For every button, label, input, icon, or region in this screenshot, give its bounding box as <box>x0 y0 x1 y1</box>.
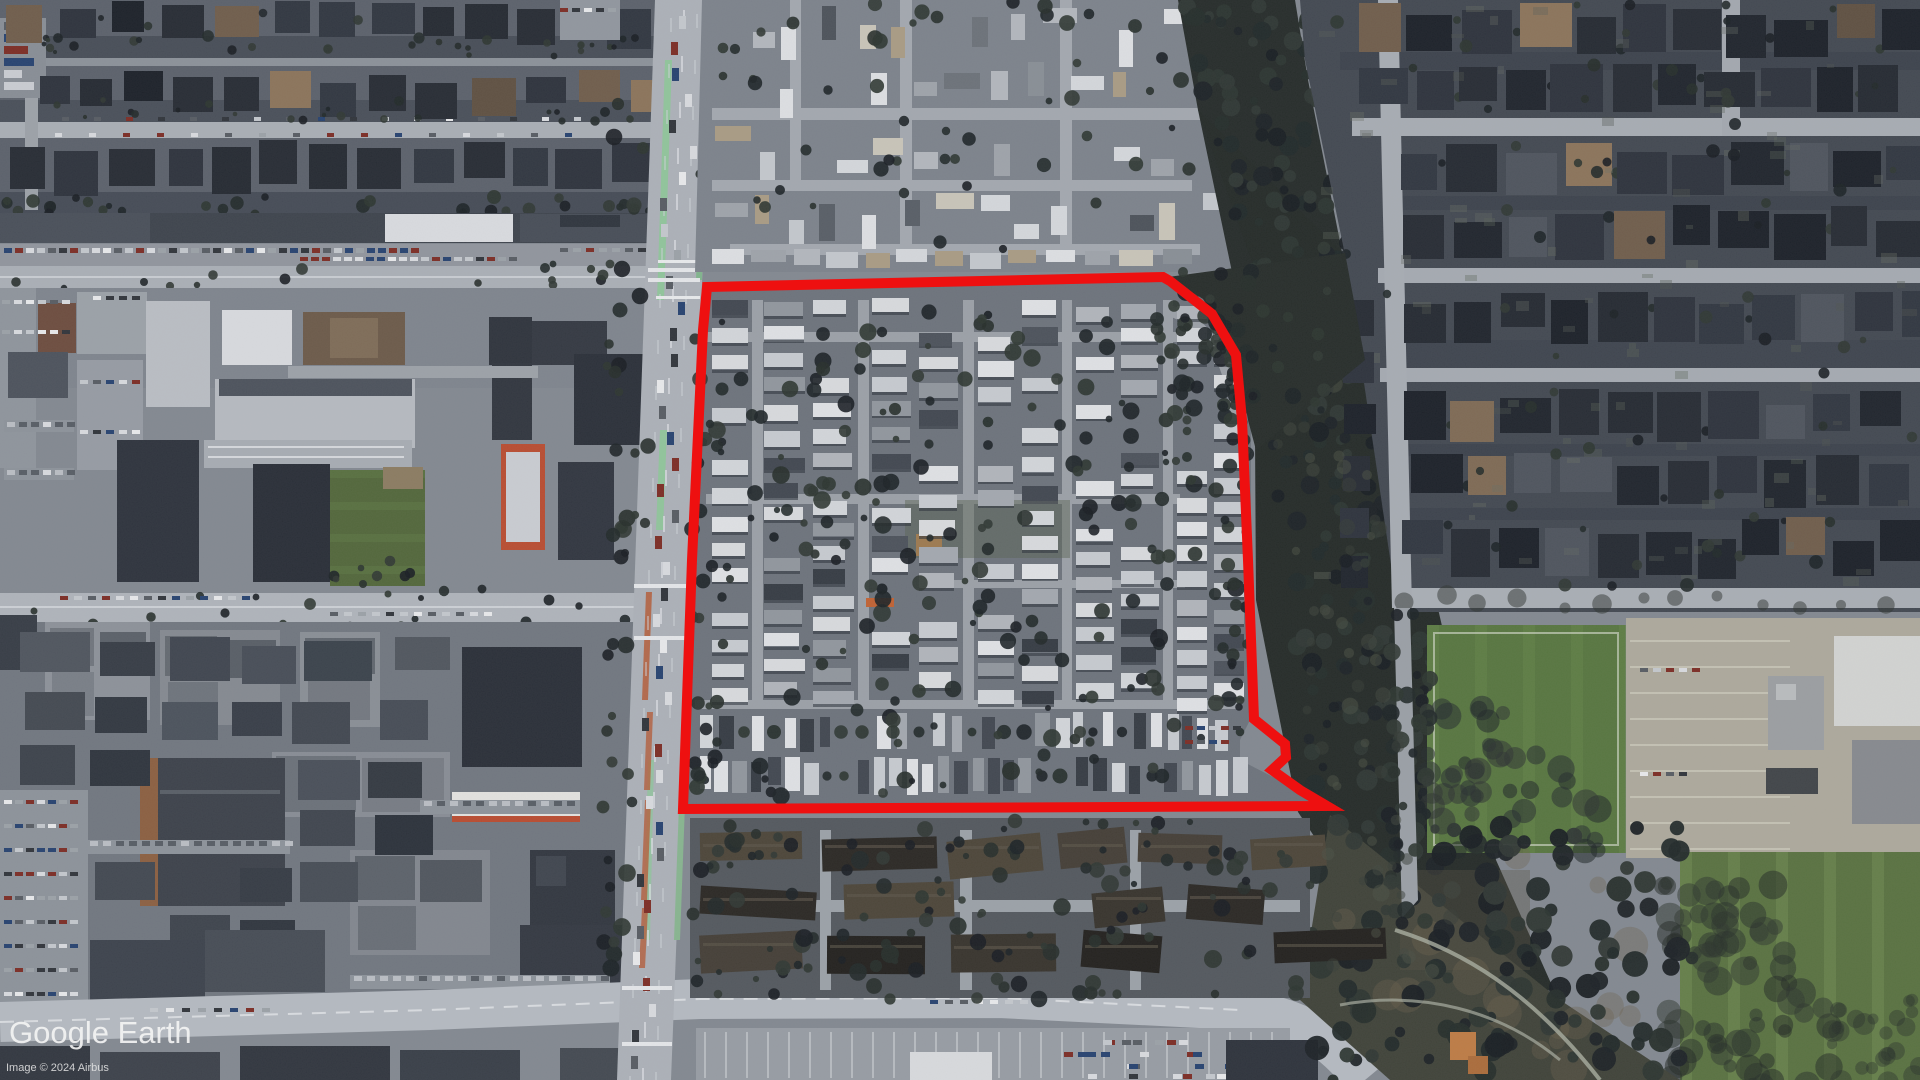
svg-text:Google Earth: Google Earth <box>9 1015 192 1050</box>
svg-text:Image © 2024 Airbus: Image © 2024 Airbus <box>6 1062 109 1074</box>
